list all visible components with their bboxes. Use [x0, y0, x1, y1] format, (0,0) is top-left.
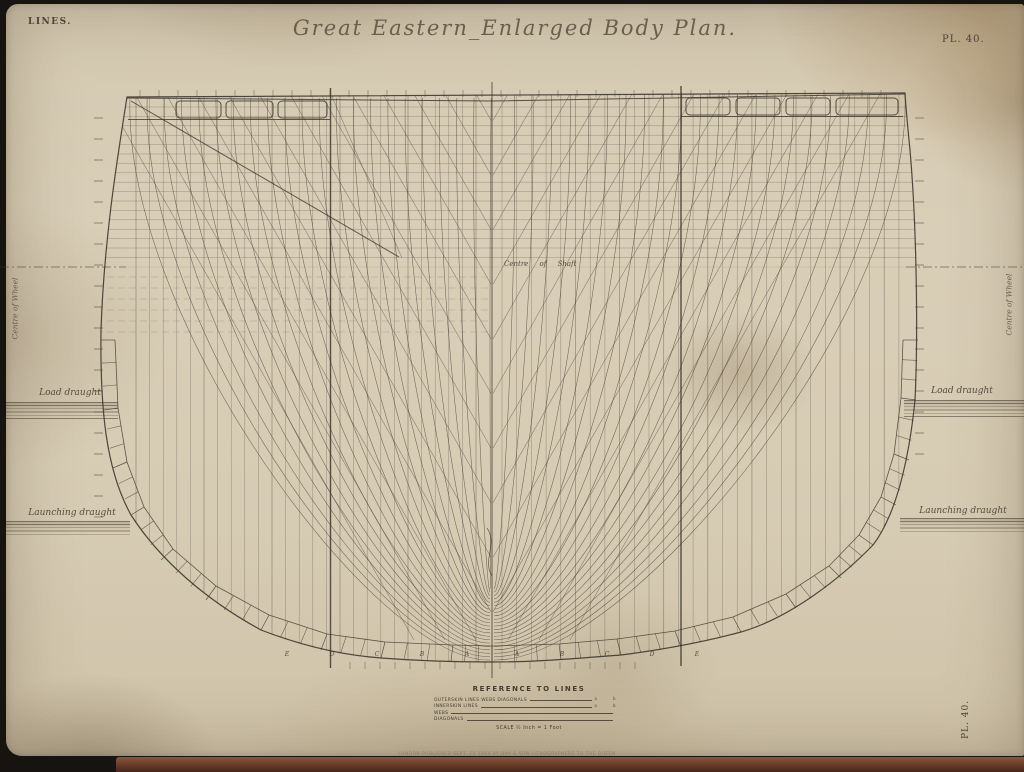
- svg-text:B: B: [559, 651, 565, 658]
- interior-linework: [96, 90, 922, 666]
- photo-table-edge: [116, 757, 1024, 772]
- svg-text:A: A: [464, 651, 470, 658]
- structural-lines: [0, 82, 1024, 678]
- svg-text:D: D: [649, 651, 655, 658]
- scale-ticks: [94, 90, 924, 669]
- deck-boxes: [176, 98, 898, 118]
- svg-text:C: C: [375, 651, 380, 658]
- body-plan-drawing: EDCBAABCDE: [0, 0, 1024, 772]
- svg-text:A: A: [514, 651, 520, 658]
- svg-text:E: E: [694, 651, 700, 658]
- svg-text:B: B: [419, 651, 425, 658]
- photograph-of-plate: { "plate": { "corner_label": "LINES.", "…: [0, 0, 1024, 772]
- svg-text:D: D: [329, 651, 335, 658]
- double-bottom-cells: [101, 340, 918, 662]
- svg-text:C: C: [605, 651, 610, 658]
- svg-text:E: E: [284, 651, 290, 658]
